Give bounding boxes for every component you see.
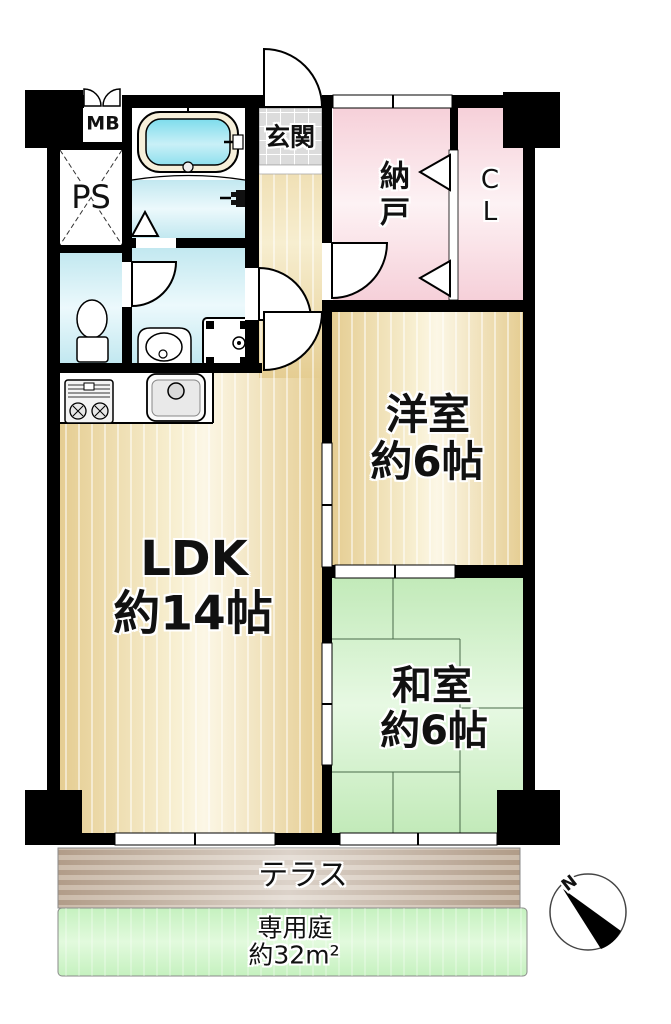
- meter-box-door-left: [84, 89, 101, 106]
- terrace-label: テラス: [258, 861, 347, 891]
- western-room-size-label: 約6帖: [370, 441, 483, 483]
- entrance-label: 玄関: [265, 125, 315, 150]
- garden-size-label: 約32m²: [248, 943, 339, 968]
- gas-stove: [65, 380, 113, 423]
- garden-name-label: 専用庭: [257, 916, 332, 941]
- japanese-room-size-label: 約6帖: [380, 711, 488, 751]
- floor-plan: MB PS 玄関 納戸 CL 洋室 約6帖 LDK 約14帖 和室 約6帖 テラ…: [0, 0, 671, 1024]
- wash-basin: [138, 328, 191, 365]
- entrance-door: [264, 49, 322, 107]
- kitchen-sink: [147, 374, 205, 421]
- bathtub: [132, 106, 245, 180]
- closet-label: CL: [477, 165, 503, 229]
- entrance-step: [259, 165, 322, 174]
- washing-machine-pan: [203, 318, 251, 366]
- storage-room-label: 納戸: [376, 160, 406, 232]
- meter-box-door-right: [103, 89, 120, 106]
- meter-box-label: MB: [86, 115, 119, 134]
- toilet: [77, 300, 108, 362]
- ldk-size-label: 約14帖: [113, 591, 272, 638]
- ldk-name-label: LDK: [140, 535, 248, 583]
- japanese-room-name-label: 和室: [392, 666, 472, 706]
- pipe-space-label: PS: [71, 181, 111, 213]
- western-room-name-label: 洋室: [386, 394, 470, 436]
